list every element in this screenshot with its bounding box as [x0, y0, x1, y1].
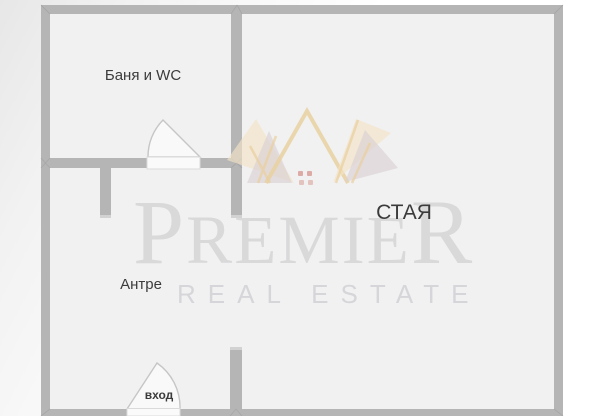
wall-right — [554, 5, 563, 416]
wall-left — [41, 5, 50, 416]
wall-divider-bottom — [230, 347, 242, 409]
bathroom-door-opening — [147, 157, 200, 169]
wall-bottom — [41, 409, 563, 416]
endcap — [230, 347, 242, 350]
floorplan-drawing — [0, 0, 614, 416]
endcap — [231, 215, 242, 218]
endcap — [100, 215, 111, 218]
crown-dot — [308, 180, 313, 185]
crown-dot — [299, 180, 304, 185]
wall-bathroom-south — [50, 158, 231, 168]
wall-stub-hallway — [100, 168, 111, 218]
entrance-door-opening — [127, 409, 180, 416]
floorplan-image: PREMIER REAL ESTATE Баня и WC СТАЯ Антре… — [0, 0, 614, 416]
room-label-staya: СТАЯ — [376, 201, 432, 224]
wall-divider-top — [231, 14, 242, 218]
wall-top — [41, 5, 563, 14]
room-label-bathroom: Баня и WC — [105, 68, 181, 85]
crown-dot — [298, 171, 303, 176]
entrance-label-vhod: вход — [145, 389, 174, 402]
room-label-antre: Антре — [120, 277, 162, 294]
crown-dot — [307, 171, 312, 176]
